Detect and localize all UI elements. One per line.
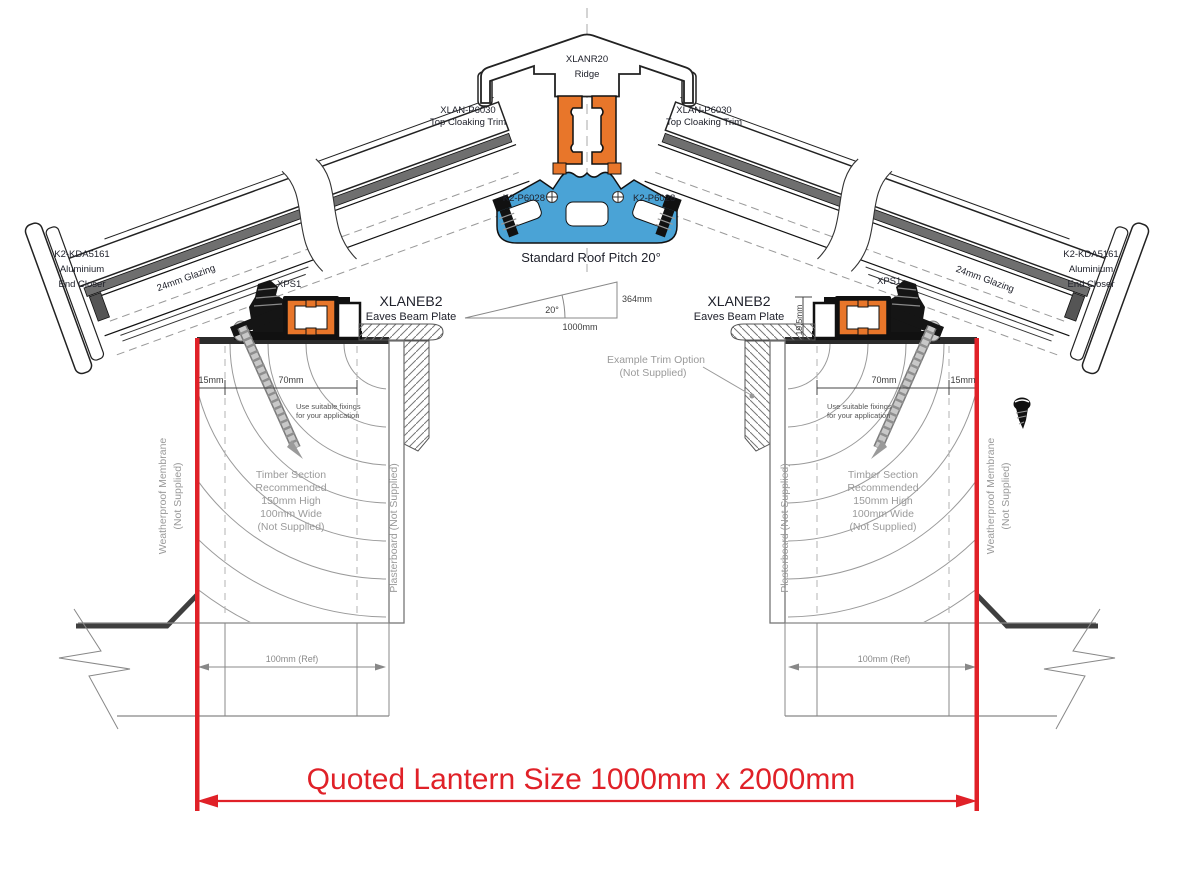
plasterboard-note-left: Plasterboard (Not Supplied) bbox=[388, 463, 400, 593]
eaves-right-code: XLANEB2 bbox=[707, 293, 770, 309]
pitch-caption: Standard Roof Pitch 20° bbox=[521, 250, 661, 265]
right-half-graphics bbox=[474, 33, 1150, 811]
membrane-note-right-line1: Weatherproof Membrane bbox=[985, 438, 997, 555]
cloaking-right-code: XLAN-P6030 bbox=[676, 105, 731, 116]
membrane-note-right-line2: (Not Supplied) bbox=[1000, 462, 1012, 529]
timber-note-right-line3: 150mm High bbox=[853, 495, 913, 507]
plasterboard-note-right: Plasterboard (Not Supplied) bbox=[779, 463, 791, 593]
pitch-rise-label: 364mm bbox=[622, 294, 652, 304]
timber-note-left-line3: 150mm High bbox=[261, 495, 321, 507]
ridge-name-label: Ridge bbox=[575, 69, 600, 80]
cloaking-right-name: Top Cloaking Trim bbox=[666, 117, 742, 128]
timber-note-right-line5: (Not Supplied) bbox=[849, 521, 916, 533]
end-closer-left-line2: Aluminium bbox=[60, 264, 104, 275]
dim-70mm-left: 70mm bbox=[278, 375, 303, 385]
dimension-arrow-left bbox=[197, 795, 218, 808]
end-closer-left-line3: End Closer bbox=[59, 279, 106, 290]
fixing-note-right-line2: for your application bbox=[827, 411, 890, 420]
pitch-base-label: 1000mm bbox=[562, 322, 597, 332]
fastener-symbol-right bbox=[613, 192, 624, 203]
eaves-right-name: Eaves Beam Plate bbox=[694, 311, 785, 323]
fastener-symbol-left bbox=[547, 192, 558, 203]
dim-15mm-left: 15mm bbox=[198, 375, 223, 385]
timber-note-left-line1: Timber Section bbox=[256, 469, 326, 481]
end-closer-right-line3: End Closer bbox=[1068, 279, 1115, 290]
timber-note-right-line1: Timber Section bbox=[848, 469, 918, 481]
timber-note-left-line4: 100mm Wide bbox=[260, 508, 322, 520]
fixing-note-left-line1: Use suitable fixings bbox=[296, 402, 361, 411]
membrane-note-left-line2: (Not Supplied) bbox=[172, 462, 184, 529]
quoted-size-title: Quoted Lantern Size 1000mm x 2000mm bbox=[307, 763, 856, 796]
ridge-thermal-break-right bbox=[592, 96, 616, 164]
fixing-note-right-line1: Use suitable fixings bbox=[827, 402, 892, 411]
membrane-note-left-line1: Weatherproof Membrane bbox=[157, 438, 169, 555]
cloaking-left-code: XLAN-P6030 bbox=[440, 105, 495, 116]
timber-note-right-line2: Recommended bbox=[847, 482, 918, 494]
timber-note-left-line2: Recommended bbox=[255, 482, 326, 494]
end-closer-left-line1: K2-KDA5161 bbox=[54, 249, 109, 260]
xps-right-label: XPS1 bbox=[877, 276, 901, 287]
glazing-bar-right-label: K2-P6028 bbox=[633, 193, 675, 204]
timber-note-right-line4: 100mm Wide bbox=[852, 508, 914, 520]
ridge-thermal-break-left bbox=[558, 96, 582, 164]
dim-15mm-right: 15mm bbox=[950, 375, 975, 385]
xps-left-label: XPS1 bbox=[277, 279, 301, 290]
end-closer-right-line2: Aluminium bbox=[1069, 264, 1113, 275]
left-half-graphics bbox=[24, 33, 700, 811]
eaves-left-name: Eaves Beam Plate bbox=[366, 311, 457, 323]
timber-note-left-line5: (Not Supplied) bbox=[257, 521, 324, 533]
eaves-left-code: XLANEB2 bbox=[379, 293, 442, 309]
roof-lantern-section-drawing: XLANR20 Ridge XLAN-P6030 Top Cloaking Tr… bbox=[0, 0, 1184, 872]
screw-icon bbox=[1014, 398, 1031, 430]
cloaking-left-name: Top Cloaking Trim bbox=[430, 117, 506, 128]
trim-option-note-line2: (Not Supplied) bbox=[619, 367, 686, 379]
fixing-note-left-line2: for your application bbox=[296, 411, 359, 420]
ridge-code-label: XLANR20 bbox=[566, 54, 608, 65]
pitch-angle-label: 20° bbox=[545, 305, 559, 315]
drawing-canvas: XLANR20 Ridge XLAN-P6030 Top Cloaking Tr… bbox=[0, 0, 1184, 872]
dim-70mm-right: 70mm bbox=[871, 375, 896, 385]
dim-100mm-ref-right: 100mm (Ref) bbox=[858, 654, 911, 664]
quoted-size-dimension bbox=[197, 795, 977, 808]
end-closer-right-line1: K2-KDA5161 bbox=[1063, 249, 1118, 260]
dim-beam-height-right: 19.5mm bbox=[794, 305, 804, 336]
dimension-arrow-right bbox=[956, 795, 977, 808]
glazing-bar-left-label: K2-P6028 bbox=[503, 193, 545, 204]
dim-100mm-ref-left: 100mm (Ref) bbox=[266, 654, 319, 664]
trim-option-note-line1: Example Trim Option bbox=[607, 354, 705, 366]
pitch-triangle bbox=[465, 282, 617, 318]
